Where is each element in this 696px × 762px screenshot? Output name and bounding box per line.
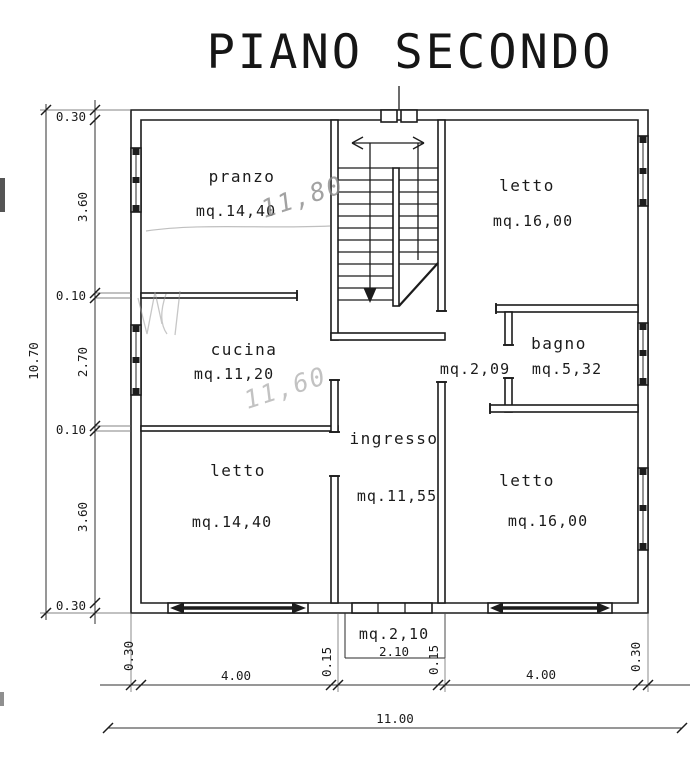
room-name-letto-se: letto xyxy=(499,471,555,490)
dim-left-1: 3.60 xyxy=(75,192,90,222)
room-area-corridoio: mq.2,09 xyxy=(440,360,510,378)
dim-bottom-6: 0.30 xyxy=(628,642,643,672)
dim-bottom-4: 0.15 xyxy=(426,645,441,675)
sliding-window-icon xyxy=(168,603,308,614)
room-area-letto-sw: mq.14,40 xyxy=(192,513,272,531)
dim-left-2: 0.10 xyxy=(56,288,86,303)
dim-bottom-0: 0.30 xyxy=(121,641,136,671)
room-area-ingresso: mq.11,55 xyxy=(357,487,437,505)
dim-bottom-5: 4.00 xyxy=(526,667,556,682)
dim-bottom-total: 11.00 xyxy=(376,711,414,726)
dim-left-6: 0.30 xyxy=(56,598,86,613)
window-icon xyxy=(638,323,648,385)
sliding-window-icon xyxy=(488,603,612,614)
dim-bottom-2: 0.15 xyxy=(319,647,334,677)
stair-stringer xyxy=(393,168,399,306)
floor-plan-drawing: PIANO SECONDO xyxy=(0,0,696,762)
dim-left-total: 10.70 xyxy=(26,342,41,380)
window-icon xyxy=(638,468,648,550)
room-name-pranzo: pranzo xyxy=(209,167,276,186)
dim-bottom-1: 4.00 xyxy=(221,668,251,683)
room-name-cucina: cucina xyxy=(211,340,278,359)
dim-left-3: 2.70 xyxy=(75,347,90,377)
room-area-letto-se: mq.16,00 xyxy=(508,512,588,530)
floor-plan-page: PIANO SECONDO xyxy=(0,0,696,762)
room-name-letto-ne: letto xyxy=(499,176,555,195)
dim-left-5: 3.60 xyxy=(75,502,90,532)
room-name-letto-sw: letto xyxy=(210,461,266,480)
drawing-title: PIANO SECONDO xyxy=(207,25,614,80)
dim-left-4: 0.10 xyxy=(56,422,86,437)
room-area-bagno: mq.5,32 xyxy=(532,360,602,378)
room-area-letto-ne: mq.16,00 xyxy=(493,212,573,230)
scan-artifact xyxy=(0,692,4,706)
window-icon xyxy=(131,148,141,212)
dim-left-0: 0.30 xyxy=(56,109,86,124)
room-name-ingresso: ingresso xyxy=(349,429,438,448)
scan-artifact xyxy=(0,178,5,212)
window-icon xyxy=(638,136,648,206)
dim-bottom-3: 2.10 xyxy=(379,644,409,659)
room-name-bagno: bagno xyxy=(531,334,587,353)
balcony-door-icon xyxy=(352,603,432,613)
room-area-balcone: mq.2,10 xyxy=(359,625,429,643)
window-icon xyxy=(131,325,141,395)
